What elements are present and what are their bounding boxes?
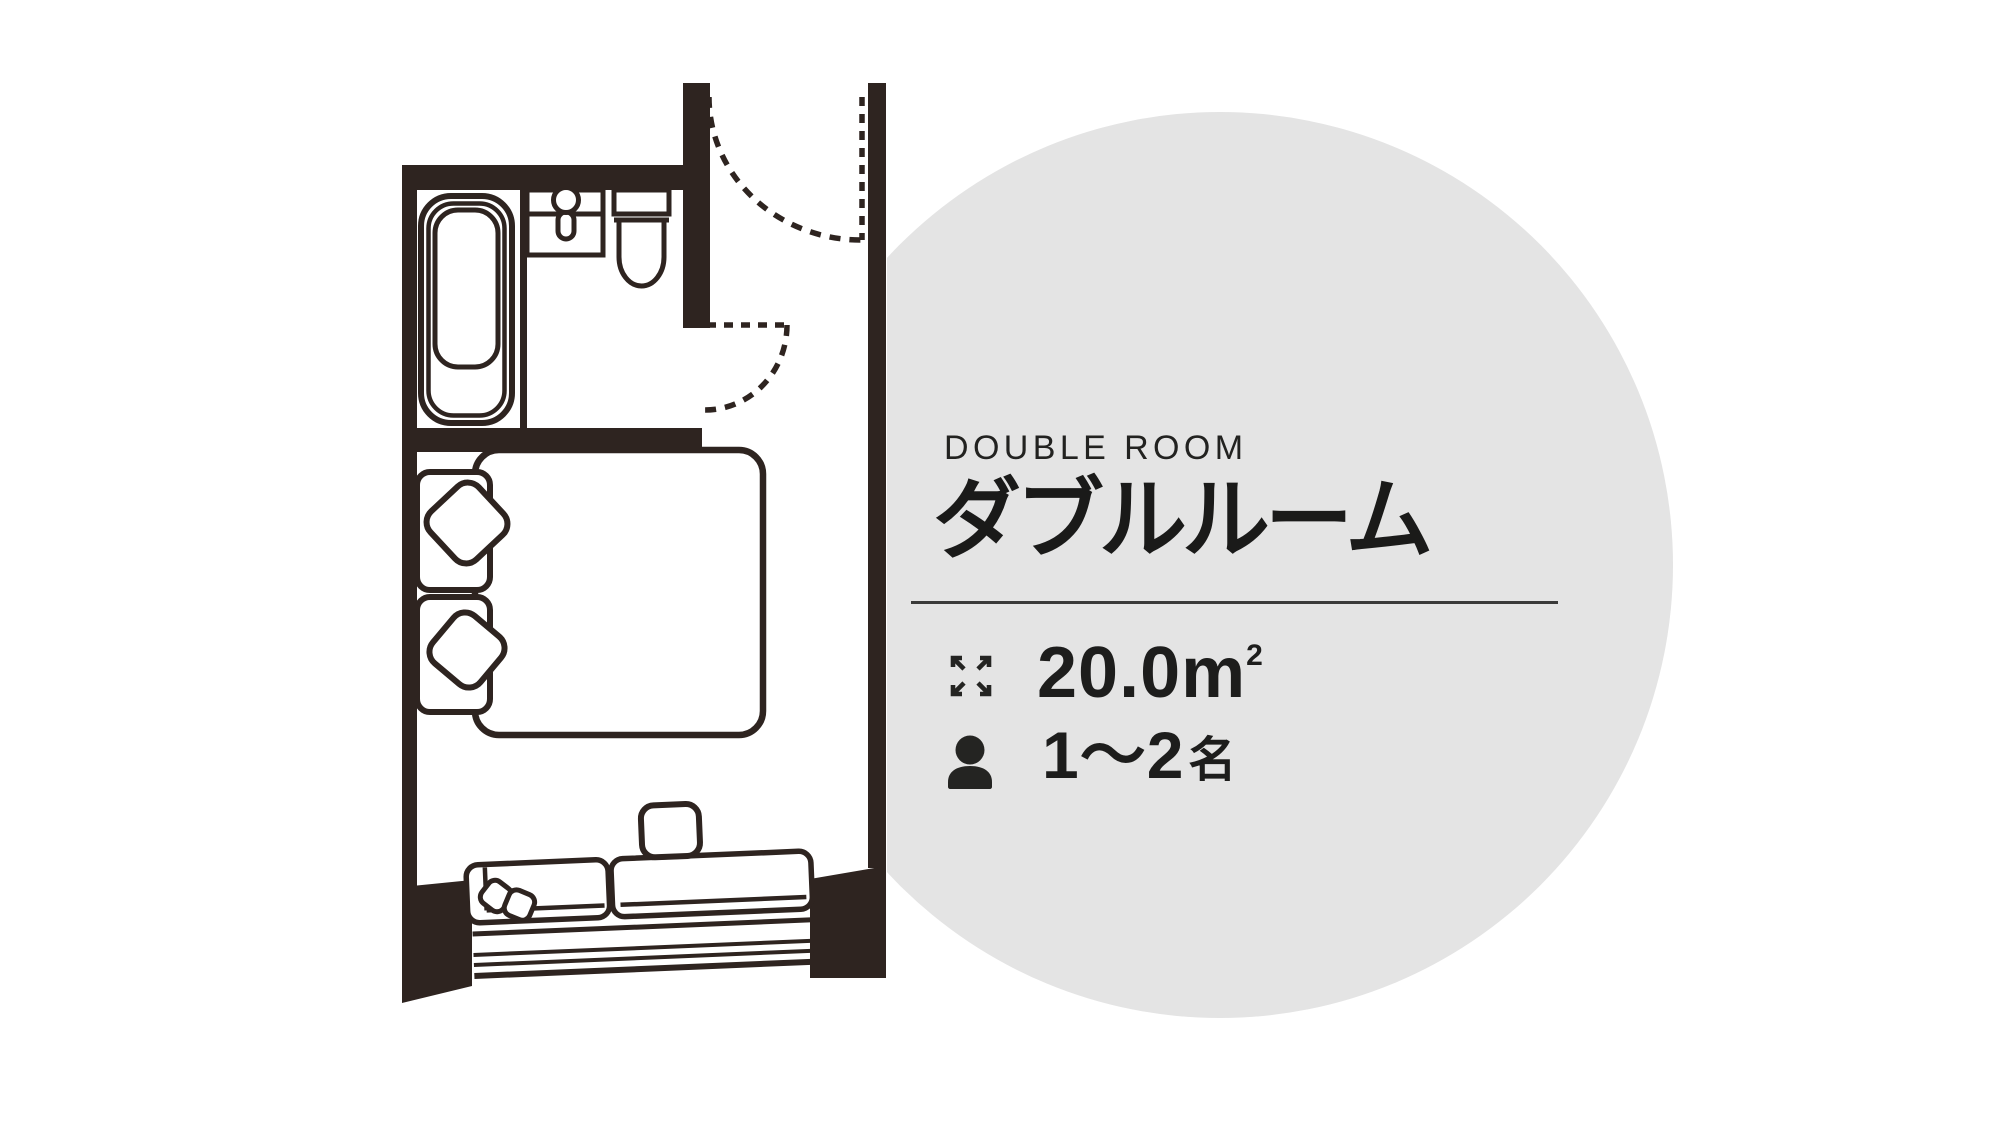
entrance-door-swing xyxy=(709,97,862,240)
vanity-sink xyxy=(527,188,603,256)
wall-entry-left xyxy=(683,83,710,328)
expand-arrows-icon xyxy=(945,650,997,702)
capacity-spec-row xyxy=(947,735,995,789)
bathroom-door-swing xyxy=(705,325,787,410)
area-spec-row xyxy=(945,650,997,702)
room-category-label: DOUBLE ROOM xyxy=(944,431,1247,465)
capacity-number: 1～2 xyxy=(1042,718,1184,792)
divider-line xyxy=(911,601,1558,604)
toilet xyxy=(614,190,669,286)
wall-bay-left xyxy=(402,880,472,1003)
window-sofa xyxy=(464,799,813,925)
area-number: 20.0 xyxy=(1037,633,1181,713)
mattress xyxy=(475,450,763,735)
area-value: 20.0m2 xyxy=(1037,637,1263,709)
bay-window-group xyxy=(464,799,816,976)
bay-window-lines xyxy=(473,920,814,976)
faucet-stem xyxy=(558,212,574,239)
wall-bay-right xyxy=(810,866,886,978)
area-unit: m xyxy=(1181,633,1246,713)
wall-right xyxy=(868,83,886,868)
person-icon xyxy=(947,735,995,789)
side-table xyxy=(640,803,700,857)
double-bed xyxy=(417,450,763,735)
room-title: ダブルルーム xyxy=(933,474,1428,566)
wall-bathroom-top xyxy=(402,165,710,190)
bathtub xyxy=(421,196,512,423)
faucet xyxy=(554,188,579,213)
area-unit-exponent: 2 xyxy=(1246,641,1263,671)
room-plan-card: DOUBLE ROOM ダブルルーム 20.0m2 1～2名 xyxy=(0,0,2001,1126)
capacity-value: 1～2名 xyxy=(1042,722,1237,788)
capacity-unit: 名 xyxy=(1188,734,1237,787)
